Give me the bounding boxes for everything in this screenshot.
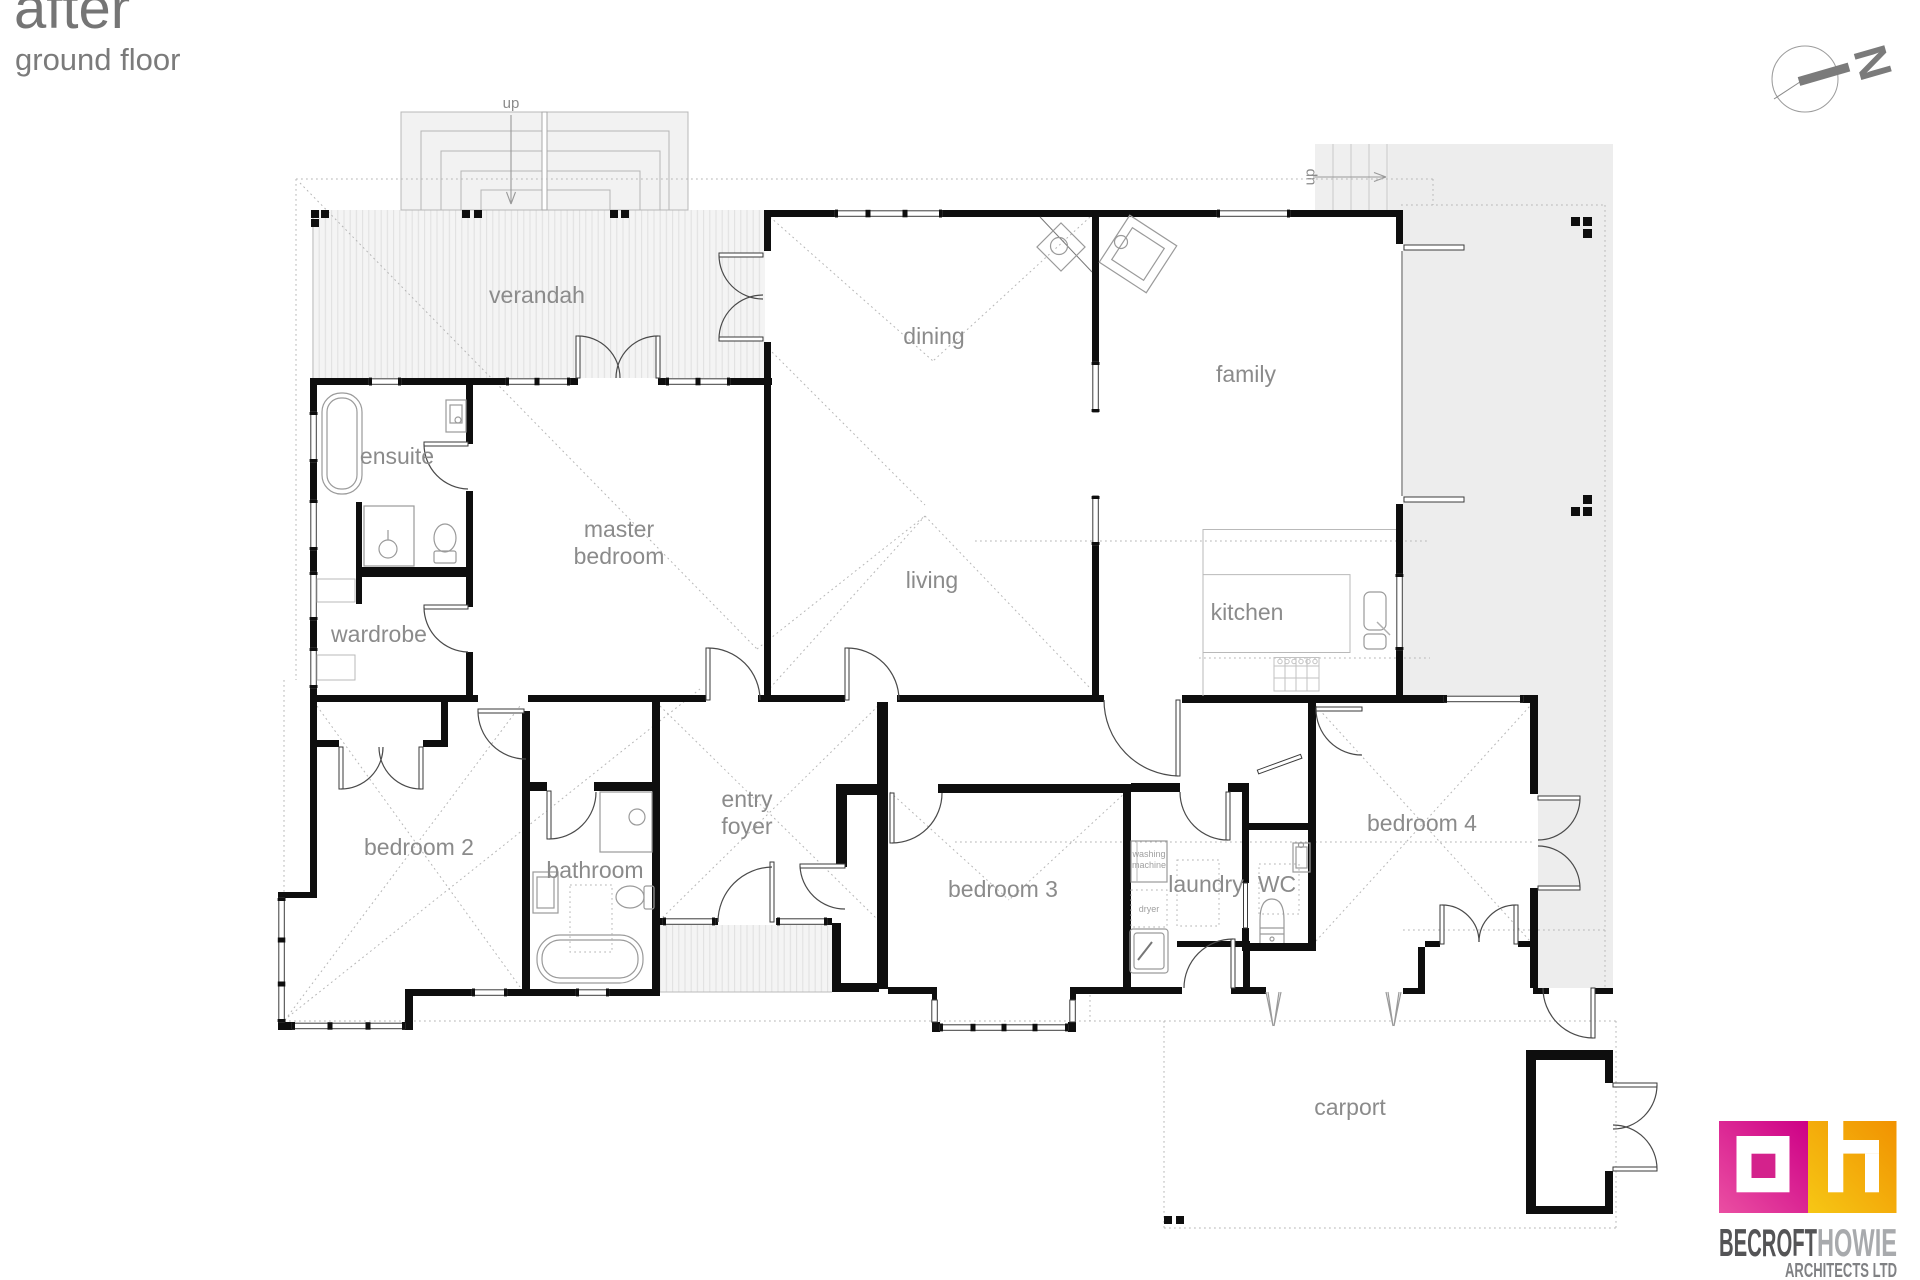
svg-text:ground floor: ground floor <box>15 42 180 77</box>
svg-text:entry: entry <box>721 786 773 812</box>
svg-text:ensuite: ensuite <box>360 443 434 469</box>
svg-text:dining: dining <box>903 323 964 349</box>
svg-text:master: master <box>584 516 655 542</box>
svg-text:dryer: dryer <box>1139 904 1160 914</box>
svg-text:carport: carport <box>1314 1094 1386 1120</box>
svg-text:wardrobe: wardrobe <box>330 621 427 647</box>
svg-text:after: after <box>14 0 130 41</box>
svg-text:foyer: foyer <box>721 813 772 839</box>
svg-text:laundry: laundry <box>1168 871 1244 897</box>
svg-text:kitchen: kitchen <box>1211 599 1284 625</box>
svg-text:family: family <box>1216 361 1277 387</box>
svg-text:verandah: verandah <box>489 282 585 308</box>
svg-text:up: up <box>503 95 520 112</box>
svg-text:bedroom: bedroom <box>574 543 665 569</box>
svg-text:living: living <box>906 567 958 593</box>
svg-text:bedroom 2: bedroom 2 <box>364 834 474 860</box>
svg-text:bedroom 4: bedroom 4 <box>1367 810 1477 836</box>
svg-text:bathroom: bathroom <box>546 857 643 883</box>
svg-text:ARCHITECTS LTD: ARCHITECTS LTD <box>1785 1259 1897 1280</box>
svg-text:WC: WC <box>1258 871 1296 897</box>
svg-text:up: up <box>1302 169 1319 186</box>
svg-text:bedroom 3: bedroom 3 <box>948 876 1058 902</box>
svg-text:machine: machine <box>1132 860 1166 870</box>
svg-text:washing: washing <box>1131 849 1165 859</box>
